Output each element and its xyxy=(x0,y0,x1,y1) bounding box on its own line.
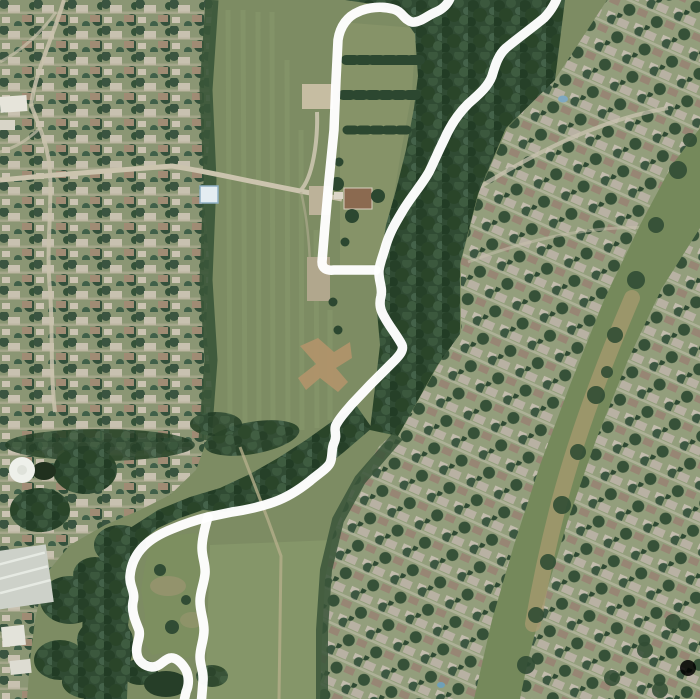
tree xyxy=(540,554,556,570)
trees xyxy=(73,557,117,593)
trees xyxy=(77,618,133,662)
tree xyxy=(648,217,664,233)
industrial-building xyxy=(9,659,31,675)
tree xyxy=(637,642,653,658)
tree xyxy=(345,209,359,223)
tree xyxy=(553,496,571,514)
building xyxy=(0,95,28,113)
tree xyxy=(341,238,350,247)
left-neighborhood-tree-edge xyxy=(205,0,212,440)
tree xyxy=(601,366,613,378)
tree xyxy=(604,670,620,686)
tree xyxy=(607,327,623,343)
tree xyxy=(665,614,681,630)
industrial-building xyxy=(1,625,26,647)
tree xyxy=(334,326,343,335)
pool xyxy=(558,96,568,103)
tree xyxy=(587,386,605,404)
park-building xyxy=(344,188,372,209)
trees xyxy=(62,665,118,699)
pool xyxy=(437,682,445,688)
tree xyxy=(652,682,668,698)
tree xyxy=(329,298,338,307)
tree xyxy=(680,660,696,676)
driveway xyxy=(334,192,343,199)
building xyxy=(0,120,15,130)
parking-lot xyxy=(302,84,333,109)
tree xyxy=(517,656,535,674)
water-tower-shadow xyxy=(32,462,56,480)
tree xyxy=(570,444,586,460)
tree xyxy=(154,564,166,576)
tree xyxy=(683,133,697,147)
tree xyxy=(669,161,687,179)
tree xyxy=(371,189,385,203)
imagery-layers xyxy=(0,0,700,699)
trees xyxy=(53,446,117,494)
meadow-dry-patch xyxy=(150,576,186,596)
trees xyxy=(10,488,70,532)
satellite-map-svg[interactable] xyxy=(0,0,700,699)
satellite-map[interactable] xyxy=(0,0,700,699)
tree xyxy=(627,271,645,289)
tree xyxy=(528,607,544,623)
water-tower-top xyxy=(17,465,27,475)
tree xyxy=(165,620,179,634)
tree xyxy=(181,595,191,605)
creek-tree-line xyxy=(190,412,242,436)
pool-building xyxy=(200,186,218,203)
